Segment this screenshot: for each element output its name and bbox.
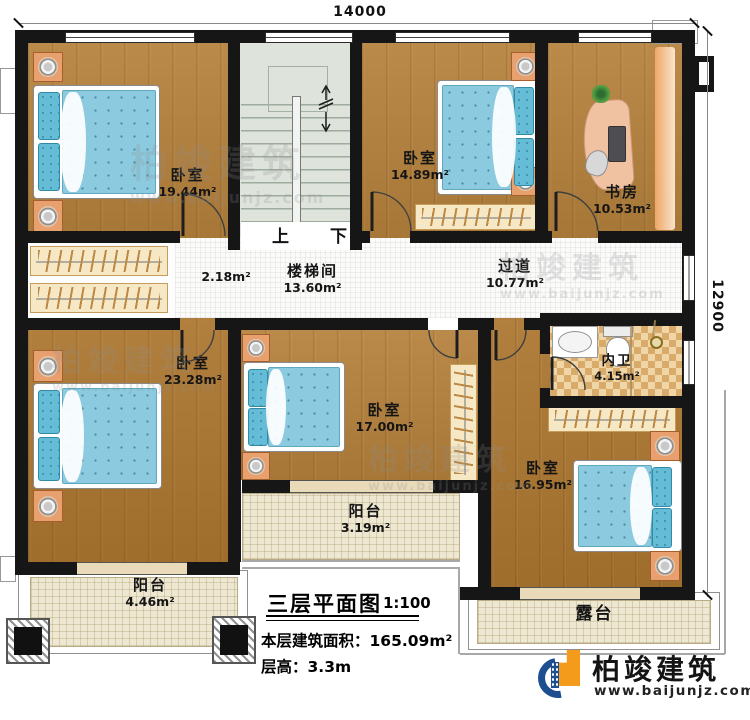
wardrobe <box>30 246 168 276</box>
room-label-bedroom-left: 卧室 23.28m² <box>148 355 238 387</box>
stair-handrail <box>292 96 301 228</box>
balcony-center-rail-line <box>242 560 460 562</box>
bed-pillow <box>248 408 268 446</box>
title-underline <box>266 615 419 617</box>
wall <box>540 396 682 408</box>
wall <box>15 30 28 575</box>
wall <box>15 562 77 575</box>
room-label-balcony-center: 阳台 3.19m² <box>328 503 403 535</box>
window <box>578 32 652 43</box>
balcony-door-threshold <box>290 480 433 493</box>
computer-monitor <box>608 126 626 162</box>
wall <box>535 43 548 233</box>
bed-pillow <box>514 138 534 186</box>
wall <box>15 231 180 243</box>
wall <box>215 318 428 330</box>
toilet-tank <box>603 326 633 337</box>
room-label-balcony-left: 阳台 4.46m² <box>110 577 190 609</box>
floor-area-label: 本层建筑面积： <box>261 632 370 650</box>
balcony-column-core <box>14 627 42 655</box>
room-label-bedroom-top-left: 卧室 19.44m² <box>140 167 235 199</box>
dimension-height: 12900 <box>709 261 725 351</box>
wall <box>540 313 682 326</box>
wall <box>15 318 180 330</box>
potted-plant <box>592 85 610 103</box>
logo-building-windows <box>551 662 559 688</box>
room-label-terrace: 露台 <box>552 604 637 624</box>
stairs-down-label: 下 <box>330 222 347 247</box>
bed-blanket <box>60 92 86 192</box>
nightstand <box>33 200 63 232</box>
plan-title: 三层平面图 <box>267 588 382 618</box>
bed-pillow <box>38 143 60 191</box>
balcony-center-rail-line <box>242 567 460 569</box>
wall <box>540 326 550 354</box>
floor-height-label: 层高： <box>261 658 308 676</box>
room-label-hall: 2.18m² <box>196 270 256 285</box>
balcony-door-threshold <box>77 562 187 575</box>
stairs-up-label: 上 <box>272 222 289 247</box>
window <box>683 340 695 385</box>
floor-plan-canvas: 14000 12900 卧室 19.44m² 卧室 14.89m² 书房 10.… <box>0 0 750 720</box>
bed-blanket <box>60 390 84 482</box>
title-underline <box>266 620 419 621</box>
room-label-study: 书房 10.53m² <box>583 184 661 216</box>
room-label-bedroom-top-right: 卧室 14.89m² <box>375 150 465 182</box>
wall <box>242 480 290 493</box>
bed-pillow <box>514 87 534 135</box>
wall <box>362 231 370 243</box>
room-label-bedroom-bottom-right: 卧室 16.95m² <box>503 460 583 492</box>
wall <box>228 43 240 250</box>
wall <box>640 587 695 600</box>
room-label-stairwell: 楼梯间 13.60m² <box>265 263 360 295</box>
logo-url: www.baijunjz.com <box>594 683 750 699</box>
bed-blanket <box>630 467 652 545</box>
balcony-column-core <box>220 625 248 655</box>
sink-icon <box>558 331 592 353</box>
nightstand <box>33 52 63 82</box>
wall-pilaster-outline <box>0 68 16 114</box>
nightstand <box>650 551 680 581</box>
terrace-door-threshold <box>520 587 640 600</box>
shower-head-icon <box>650 336 663 349</box>
bed-pillow <box>652 508 672 548</box>
floor-area-line: 本层建筑面积：165.09m² <box>261 629 452 651</box>
wall <box>682 30 695 600</box>
window <box>395 32 510 43</box>
wardrobe <box>30 283 168 313</box>
dimension-width: 14000 <box>300 4 420 20</box>
wall <box>350 43 362 250</box>
wardrobe <box>415 204 537 230</box>
wall <box>524 318 540 330</box>
eave-line <box>458 568 460 654</box>
wardrobe <box>450 364 477 481</box>
floor-area-value: 165.09m² <box>370 632 453 650</box>
wall <box>598 231 682 243</box>
window <box>265 32 353 43</box>
floor-height-value: 3.3m <box>308 658 352 676</box>
nightstand <box>33 350 63 382</box>
dimension-line-right <box>707 31 708 597</box>
room-label-corridor: 过道 10.77m² <box>480 258 550 290</box>
bed-blanket <box>492 87 516 187</box>
eave-line <box>724 390 726 654</box>
bed-pillow <box>38 437 60 481</box>
room-label-bedroom-center: 卧室 17.00m² <box>342 402 427 434</box>
bed-pillow <box>248 369 268 407</box>
wardrobe <box>548 406 676 432</box>
bed-pillow <box>652 467 672 507</box>
logo-text: 柏竣建筑 <box>592 648 720 688</box>
dimension-line-top <box>18 23 696 24</box>
bed-blanket <box>266 369 286 445</box>
wall-pilaster-outline <box>0 556 16 582</box>
nightstand <box>33 490 63 522</box>
nightstand <box>242 334 270 362</box>
bed-pillow <box>38 92 60 140</box>
window <box>65 32 195 43</box>
nightstand <box>242 452 270 480</box>
room-label-bathroom: 内卫 4.15m² <box>583 354 651 383</box>
wall <box>187 562 240 575</box>
wall <box>410 231 552 243</box>
plan-scale: 1:100 <box>383 594 431 612</box>
floor-height-line: 层高：3.3m <box>261 655 351 677</box>
wall <box>433 480 478 493</box>
bed-pillow <box>38 390 60 434</box>
window <box>683 255 695 301</box>
logo-building-icon <box>556 650 580 686</box>
wall <box>478 325 491 587</box>
nightstand <box>650 431 680 461</box>
wall <box>460 587 520 600</box>
